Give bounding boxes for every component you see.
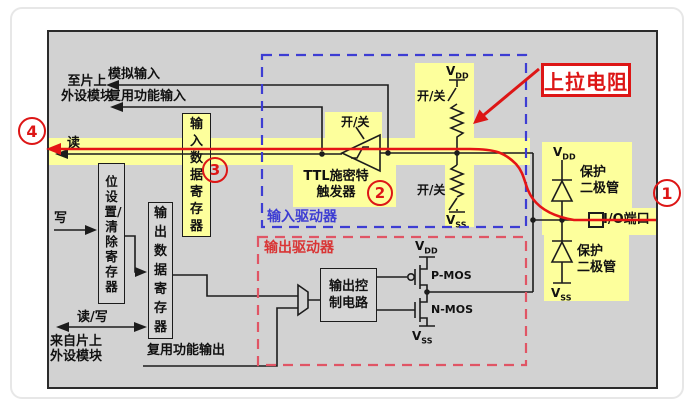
pmos-gate-bubble: [408, 274, 414, 280]
pmos-icon: [377, 257, 435, 292]
write-arrowhead-icon: [85, 225, 97, 235]
step-1-badge: 1: [653, 179, 681, 207]
read-path-wire: [52, 149, 656, 220]
rw-right-arrowhead-icon: [134, 322, 147, 332]
step-2-badge: 2: [367, 180, 393, 206]
pulldown-resistor-icon: [451, 165, 463, 197]
af-input-arrowhead-icon: [110, 102, 123, 112]
read-path-arrowhead-icon: [46, 143, 61, 155]
schmitt-switch-icon: [356, 127, 364, 139]
mux-icon: [298, 285, 308, 315]
analog-input-arrowhead-icon: [106, 80, 119, 90]
pulldown-switch-icon: [449, 198, 465, 212]
af-input-wire: [122, 107, 322, 151]
gpio-structure-diagram: 输入数据寄存器 位设置/清除寄存器 输出数据寄存器 输出控制电路 至片上 外设模…: [0, 0, 694, 408]
step-4-badge: 4: [18, 117, 46, 145]
pullup-switch-icon: [448, 80, 465, 101]
input-driver-box: [262, 55, 526, 227]
step-3-badge: 3: [202, 157, 228, 183]
circuit-wires: [0, 0, 694, 408]
mux-wires: [143, 275, 320, 366]
analog-input-wire: [118, 85, 388, 151]
pad-wire: [380, 153, 589, 292]
schmitt-trigger-icon: [342, 135, 380, 171]
bit-to-output-arrowhead-icon: [135, 267, 147, 277]
black-arrowheads: [55, 80, 565, 332]
pullup-annotation-arrow: [473, 69, 539, 124]
nmos-icon: [377, 292, 435, 326]
rw-left-arrowhead-icon: [56, 322, 69, 332]
protection-diode-top-icon: [552, 181, 572, 201]
pullup-annotation-box: 上拉电阻: [541, 63, 631, 97]
bit-to-output-wire: [125, 236, 136, 272]
pullup-resistor-icon: [451, 104, 463, 153]
protection-diode-bottom-icon: [552, 242, 572, 262]
